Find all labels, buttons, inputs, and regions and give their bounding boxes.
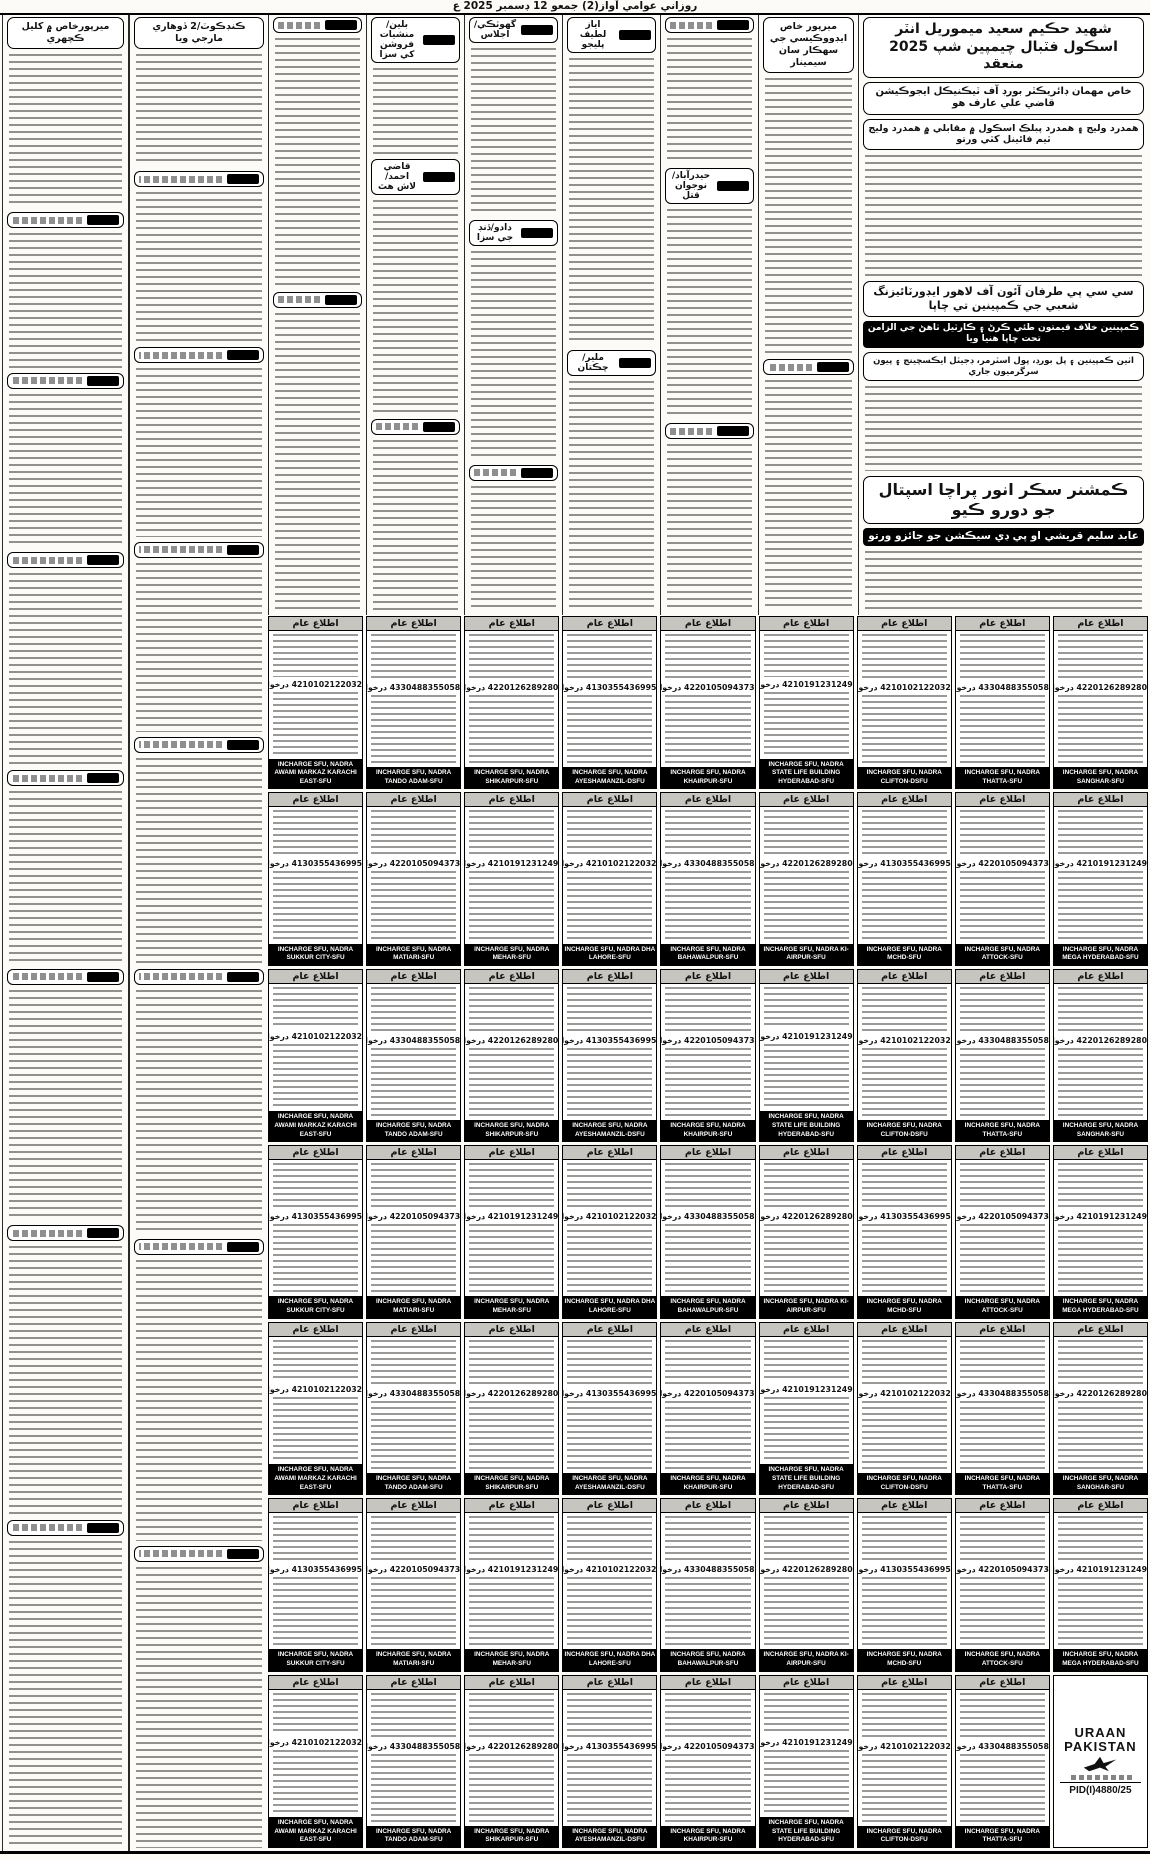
cnic-number: 4220105094373 درخواست وصول [956, 1212, 1049, 1221]
notice-title: اطلاع عام [563, 1676, 656, 1690]
notice-title: اطلاع عام [563, 1323, 656, 1337]
notice-cell: اطلاع عام4220126289280 درخواست وصولINCHA… [759, 1498, 854, 1671]
notice-cell: اطلاع عام4220105094373 درخواست وصولINCHA… [660, 616, 755, 789]
notice-cell: اطلاع عام4210191231249 درخواست وصولINCHA… [464, 792, 559, 965]
body-text-block [373, 200, 458, 414]
incharge-footer: INCHARGE SFU, NADRA CLIFTON-DSFU [858, 1473, 951, 1494]
notice-body-text [862, 871, 947, 940]
notice-cell: اطلاع عام4220105094373 درخواست وصولINCHA… [660, 1322, 755, 1495]
incharge-footer: INCHARGE SFU, NADRA SHIKARPUR-SFU [465, 1826, 558, 1847]
body-text-block [136, 54, 262, 166]
cnic-number: 4220126289280 درخواست وصول [760, 1212, 853, 1221]
notice-body-text [665, 1754, 750, 1823]
subhead-box [763, 359, 854, 375]
notice-cell: اطلاع عام4210191231249 درخواست وصولINCHA… [1053, 1498, 1148, 1671]
notice-body-text [862, 1577, 947, 1646]
notice-cell: اطلاع عام4210191231249 درخواست وصولINCHA… [464, 1498, 559, 1671]
body-text-block [865, 386, 1142, 471]
notice-body-text [665, 1577, 750, 1646]
notice-title: اطلاع عام [858, 970, 951, 984]
notice-body-text [371, 987, 456, 1033]
incharge-footer: INCHARGE SFU, NADRA KHAIRPUR-SFU [661, 1826, 754, 1847]
unreadable-subhead-text [139, 1550, 222, 1557]
notice-body-text [371, 1693, 456, 1739]
cnic-number: 4210191231249 درخواست وصول [465, 859, 558, 868]
subhead-box: ملير/چڪتان [567, 350, 656, 376]
notice-body-text [665, 1340, 750, 1386]
cnic-number: 4210102122032 درخواست وصول [563, 1212, 656, 1221]
subhead-box [7, 373, 124, 389]
notice-body-text [862, 1163, 947, 1209]
notice-body-text [567, 1224, 652, 1293]
notice-body-text [273, 1516, 358, 1562]
notice-body-text [1058, 987, 1143, 1033]
subhead-box [134, 1546, 264, 1562]
body-text-block [9, 54, 122, 208]
notice-title: اطلاع عام [956, 1499, 1049, 1513]
cnic-number: 4130355436995 درخواست وصول [858, 1212, 951, 1221]
notice-title: اطلاع عام [760, 793, 853, 807]
notice-title: اطلاع عام [1054, 617, 1147, 631]
headline-box: ميرپور خاص ايڊووڪيسي جي سهڪار سان سيمينا… [763, 17, 854, 73]
headline-box: ڪمشنر سڪر انور پراچا اسپتال جو دورو ڪيو [863, 476, 1144, 524]
cnic-number: 4330488355058 درخواست وصول [661, 1565, 754, 1574]
notice-cell: اطلاع عام4220126289280 درخواست وصولINCHA… [464, 1675, 559, 1848]
category-tag [325, 20, 357, 30]
cnic-number: 4220126289280 درخواست وصول [465, 683, 558, 692]
notice-body-text [764, 1750, 849, 1814]
incharge-footer: INCHARGE SFU, NADRA DHA LAHORE-SFU [563, 944, 656, 965]
notice-cell: اطلاع عام4220105094373 درخواست وصولINCHA… [955, 792, 1050, 965]
notice-title: اطلاع عام [269, 1676, 362, 1690]
body-text-block [136, 368, 262, 537]
notice-body-text [764, 634, 849, 677]
notice-cell: اطلاع عام4210102122032 درخواست وصولINCHA… [562, 1145, 657, 1318]
notice-body-text [469, 1516, 554, 1562]
article-column-1: ڪنڊڪوٽ/2 ڏوهاري مارجي ويا [129, 14, 268, 1852]
notice-body-text [469, 695, 554, 764]
body-text-block [136, 1260, 262, 1541]
cnic-number: 4220105094373 درخواست وصول [661, 1389, 754, 1398]
subhead-box [7, 770, 124, 786]
cnic-number: 4330488355058 درخواست وصول [956, 683, 1049, 692]
cnic-number: 4210191231249 درخواست وصول [760, 1032, 853, 1041]
notice-cell: اطلاع عام4130355436995 درخواست وصولINCHA… [562, 616, 657, 789]
article-column-2 [268, 14, 366, 615]
notice-title: اطلاع عام [956, 970, 1049, 984]
notice-title: اطلاع عام [367, 793, 460, 807]
notice-title: اطلاع عام [858, 1676, 951, 1690]
article-column-6: حيدرآباد/نوجوان قتل [660, 14, 758, 615]
unreadable-subhead-text [12, 557, 82, 564]
notice-cell: اطلاع عام4210102122032 درخواست وصولINCHA… [268, 969, 363, 1142]
cnic-number: 4220105094373 درخواست وصول [956, 859, 1049, 868]
unreadable-subhead-text [12, 217, 82, 224]
notice-body-text [1058, 1516, 1143, 1562]
cnic-number: 4220126289280 درخواست وصول [465, 1389, 558, 1398]
cnic-number: 4130355436995 درخواست وصول [563, 1036, 656, 1045]
unreadable-subhead-text [139, 176, 222, 183]
notice-body-text [567, 695, 652, 764]
notice-title: اطلاع عام [367, 970, 460, 984]
headline-box: اٺين ڪمپينين ۽ پل بورڊ، پول اسٽرمر، ڊجيٽ… [863, 352, 1144, 381]
incharge-footer: INCHARGE SFU, NADRA SUKKUR CITY-SFU [269, 1649, 362, 1670]
notice-title: اطلاع عام [367, 1323, 460, 1337]
cnic-number: 4210102122032 درخواست وصول [858, 1389, 951, 1398]
notice-body-text [862, 1516, 947, 1562]
article-column-0: ميرپورخاص ۾ کليل ڪچهري [2, 14, 129, 1852]
category-tag [227, 740, 259, 750]
cnic-number: 4330488355058 درخواست وصول [956, 1742, 1049, 1751]
notice-title: اطلاع عام [661, 617, 754, 631]
unreadable-subhead-text [12, 377, 82, 384]
category-tag [619, 358, 651, 368]
incharge-footer: INCHARGE SFU, NADRA AYESHAMANZIL-DSFU [563, 767, 656, 788]
notice-cell: اطلاع عام4330488355058 درخواست وصولINCHA… [366, 1675, 461, 1848]
notice-body-text [665, 634, 750, 680]
cnic-number: 4210191231249 درخواست وصول [760, 1385, 853, 1394]
body-text-block [865, 551, 1142, 611]
notice-body-text [1058, 634, 1143, 680]
notice-body-text [1058, 695, 1143, 764]
cnic-number: 4210191231249 درخواست وصول [1054, 859, 1147, 868]
cnic-number: 4330488355058 درخواست وصول [367, 1389, 460, 1398]
unreadable-subhead-text [139, 1243, 222, 1250]
incharge-footer: INCHARGE SFU, NADRA AWAMI MARKAZ KARACHI… [269, 1817, 362, 1847]
cnic-number: 4130355436995 درخواست وصول [858, 859, 951, 868]
notice-body-text [371, 1401, 456, 1470]
notice-title: اطلاع عام [858, 793, 951, 807]
notice-cell: اطلاع عام4220126289280 درخواست وصولINCHA… [464, 969, 559, 1142]
category-tag [227, 972, 259, 982]
notice-title: اطلاع عام [367, 617, 460, 631]
notice-body-text [1058, 1340, 1143, 1386]
notice-cell: اطلاع عام4330488355058 درخواست وصولINCHA… [366, 616, 461, 789]
notice-body-text [862, 1401, 947, 1470]
notice-title: اطلاع عام [367, 1499, 460, 1513]
notice-cell: اطلاع عام4210191231249 درخواست وصولINCHA… [759, 616, 854, 789]
subhead-box [665, 423, 754, 439]
unreadable-subhead-text [376, 423, 418, 430]
cnic-number: 4220126289280 درخواست وصول [760, 859, 853, 868]
category-tag [87, 215, 119, 225]
unreadable-subhead-text [670, 428, 712, 435]
body-text-block [471, 48, 556, 215]
cnic-number: 4130355436995 درخواست وصول [563, 1389, 656, 1398]
notice-title: اطلاع عام [858, 617, 951, 631]
category-tag [521, 468, 553, 478]
cnic-number: 4130355436995 درخواست وصول [269, 859, 362, 868]
incharge-footer: INCHARGE SFU, NADRA THATTA-SFU [956, 1826, 1049, 1847]
incharge-footer: INCHARGE SFU, NADRA THATTA-SFU [956, 1120, 1049, 1141]
cnic-number: 4130355436995 درخواست وصول [563, 1742, 656, 1751]
incharge-footer: INCHARGE SFU, NADRA STATE LIFE BUILDING … [760, 1464, 853, 1494]
notice-body-text [1058, 1224, 1143, 1293]
notice-cell: اطلاع عام4210191231249 درخواست وصولINCHA… [759, 1322, 854, 1495]
cnic-number: 4330488355058 درخواست وصول [956, 1389, 1049, 1398]
notice-title: اطلاع عام [367, 1146, 460, 1160]
headline-box: خاص مهمان ڊائريڪٽر بورڊ آف ٽيڪنيڪل ايجوڪ… [863, 82, 1144, 115]
notice-body-text [273, 1693, 358, 1736]
notice-title: اطلاع عام [956, 617, 1049, 631]
notice-cell: اطلاع عام4220126289280 درخواست وصولINCHA… [1053, 616, 1148, 789]
notice-body-text [862, 1048, 947, 1117]
cnic-number: 4330488355058 درخواست وصول [367, 683, 460, 692]
subhead-label: قاضي احمد/لاش هٿ [376, 162, 418, 192]
notice-cell: اطلاع عام4210102122032 درخواست وصولINCHA… [857, 969, 952, 1142]
headline-box: ميرپورخاص ۾ کليل ڪچهري [7, 17, 124, 49]
notice-body-text [469, 1401, 554, 1470]
body-text-block [471, 486, 556, 611]
category-tag [717, 426, 749, 436]
body-text-block [9, 394, 122, 548]
notice-body-text [469, 1754, 554, 1823]
notice-title: اطلاع عام [858, 1499, 951, 1513]
incharge-footer: INCHARGE SFU, NADRA SHIKARPUR-SFU [465, 1473, 558, 1494]
notice-cell: اطلاع عام4130355436995 درخواست وصولINCHA… [857, 1145, 952, 1318]
notice-title: اطلاع عام [661, 793, 754, 807]
category-tag [717, 20, 749, 30]
cnic-number: 4210102122032 درخواست وصول [269, 1385, 362, 1394]
category-tag [227, 1242, 259, 1252]
notice-cell: اطلاع عام4210191231249 درخواست وصولINCHA… [1053, 1145, 1148, 1318]
notice-body-text [764, 987, 849, 1030]
notice-title: اطلاع عام [269, 970, 362, 984]
incharge-footer: INCHARGE SFU, NADRA SUKKUR CITY-SFU [269, 1296, 362, 1317]
notice-body-text [273, 810, 358, 856]
category-tag [87, 773, 119, 783]
notice-body-text [567, 1340, 652, 1386]
incharge-footer: INCHARGE SFU, NADRA MEGA HYDERABAD-SFU [1054, 944, 1147, 965]
notice-title: اطلاع عام [956, 1676, 1049, 1690]
unreadable-subhead-text [139, 741, 222, 748]
notice-cell: اطلاع عام4210102122032 درخواست وصولINCHA… [562, 1498, 657, 1671]
notice-body-text [665, 1048, 750, 1117]
incharge-footer: INCHARGE SFU, NADRA STATE LIFE BUILDING … [760, 1111, 853, 1141]
notice-body-text [273, 1044, 358, 1108]
incharge-footer: INCHARGE SFU, NADRA BAHAWALPUR-SFU [661, 1649, 754, 1670]
notice-title: اطلاع عام [760, 970, 853, 984]
incharge-footer: INCHARGE SFU, NADRA KI-AIRPUR-SFU [760, 944, 853, 965]
notice-title: اطلاع عام [956, 1323, 1049, 1337]
notice-body-text [273, 1397, 358, 1461]
notice-title: اطلاع عام [661, 1499, 754, 1513]
cnic-number: 4220126289280 درخواست وصول [1054, 683, 1147, 692]
notice-cell: اطلاع عام4220126289280 درخواست وصولINCHA… [759, 1145, 854, 1318]
category-tag [227, 545, 259, 555]
unreadable-subhead-text [139, 352, 222, 359]
body-text-block [471, 251, 556, 460]
notice-title: اطلاع عام [563, 793, 656, 807]
notice-body-text [273, 1750, 358, 1814]
cnic-number: 4210102122032 درخواست وصول [269, 1738, 362, 1747]
notice-title: اطلاع عام [956, 1146, 1049, 1160]
cnic-number: 4210191231249 درخواست وصول [1054, 1212, 1147, 1221]
incharge-footer: INCHARGE SFU, NADRA BAHAWALPUR-SFU [661, 944, 754, 965]
notice-body-text [469, 1163, 554, 1209]
body-text-block [765, 78, 852, 355]
subhead-box [7, 969, 124, 985]
incharge-footer: INCHARGE SFU, NADRA CLIFTON-DSFU [858, 767, 951, 788]
incharge-footer: INCHARGE SFU, NADRA MATIARI-SFU [367, 1649, 460, 1670]
category-tag [227, 174, 259, 184]
notice-body-text [567, 1754, 652, 1823]
notice-title: اطلاع عام [661, 1146, 754, 1160]
notice-body-text [960, 1048, 1045, 1117]
subhead-box [7, 212, 124, 228]
cnic-number: 4210191231249 درخواست وصول [1054, 1565, 1147, 1574]
subhead-box: دادو/ڏنڊ جي سزا [469, 220, 558, 246]
category-tag [521, 25, 553, 35]
notice-title: اطلاع عام [269, 1499, 362, 1513]
incharge-footer: INCHARGE SFU, NADRA SHIKARPUR-SFU [465, 767, 558, 788]
body-text-block [136, 990, 262, 1234]
notice-title: اطلاع عام [1054, 1146, 1147, 1160]
unreadable-subhead-text [12, 775, 82, 782]
notice-body-text [960, 1163, 1045, 1209]
notice-body-text [764, 1163, 849, 1209]
cnic-number: 4330488355058 درخواست وصول [661, 859, 754, 868]
unreadable-subhead-text [278, 22, 320, 29]
notice-title: اطلاع عام [269, 1323, 362, 1337]
category-tag [423, 422, 455, 432]
cnic-number: 4330488355058 درخواست وصول [367, 1036, 460, 1045]
notice-title: اطلاع عام [661, 970, 754, 984]
notice-cell: اطلاع عام4330488355058 درخواست وصولINCHA… [955, 969, 1050, 1142]
body-text-block [667, 444, 752, 611]
notice-body-text [960, 1577, 1045, 1646]
notice-body-text [567, 810, 652, 856]
category-tag [817, 362, 849, 372]
category-tag [87, 376, 119, 386]
notice-cell: اطلاع عام4210102122032 درخواست وصولINCHA… [268, 1322, 363, 1495]
notice-body-text [764, 1693, 849, 1736]
notice-cell: اطلاع عام4210191231249 درخواست وصولINCHA… [759, 969, 854, 1142]
incharge-footer: INCHARGE SFU, NADRA THATTA-SFU [956, 767, 1049, 788]
cnic-number: 4330488355058 درخواست وصول [367, 1742, 460, 1751]
subhead-box [134, 171, 264, 187]
cnic-number: 4220105094373 درخواست وصول [956, 1565, 1049, 1574]
notice-cell: اطلاع عام4330488355058 درخواست وصولINCHA… [955, 616, 1050, 789]
incharge-footer: INCHARGE SFU, NADRA KHAIRPUR-SFU [661, 1120, 754, 1141]
incharge-footer: INCHARGE SFU, NADRA MEGA HYDERABAD-SFU [1054, 1296, 1147, 1317]
incharge-footer: INCHARGE SFU, NADRA TANDO ADAM-SFU [367, 1826, 460, 1847]
notice-cell: اطلاع عام4220105094373 درخواست وصولINCHA… [660, 969, 755, 1142]
cnic-number: 4210191231249 درخواست وصول [465, 1565, 558, 1574]
logo-tagline [1069, 1775, 1131, 1780]
notice-body-text [862, 695, 947, 764]
uraan-pakistan-logo-cell: URAAN PAKISTANPID(I)4880/25 [1053, 1675, 1148, 1848]
notice-body-text [862, 1693, 947, 1739]
notice-body-text [371, 1163, 456, 1209]
body-text-block [9, 233, 122, 367]
subhead-box [7, 1225, 124, 1241]
incharge-footer: INCHARGE SFU, NADRA TANDO ADAM-SFU [367, 1473, 460, 1494]
notice-body-text [1058, 1163, 1143, 1209]
incharge-footer: INCHARGE SFU, NADRA DHA LAHORE-SFU [563, 1296, 656, 1317]
incharge-footer: INCHARGE SFU, NADRA MATIARI-SFU [367, 1296, 460, 1317]
body-text-block [9, 1246, 122, 1515]
incharge-footer: INCHARGE SFU, NADRA DHA LAHORE-SFU [563, 1649, 656, 1670]
body-text-block [136, 563, 262, 732]
notice-title: اطلاع عام [858, 1146, 951, 1160]
category-tag [423, 35, 455, 45]
notice-title: اطلاع عام [1054, 1323, 1147, 1337]
notice-cell: اطلاع عام4220126289280 درخواست وصولINCHA… [464, 1322, 559, 1495]
notice-body-text [371, 1754, 456, 1823]
pid-number: PID(I)4880/25 [1060, 1782, 1140, 1796]
notice-cell: اطلاع عام4220105094373 درخواست وصولINCHA… [955, 1145, 1050, 1318]
notice-body-text [862, 987, 947, 1033]
body-text-block [865, 155, 1142, 276]
notice-cell: اطلاع عام4130355436995 درخواست وصولINCHA… [857, 1498, 952, 1671]
notice-body-text [862, 1340, 947, 1386]
notice-cell: اطلاع عام4210102122032 درخواست وصولINCHA… [268, 1675, 363, 1848]
notice-title: اطلاع عام [661, 1676, 754, 1690]
article-column-8: شهيد حڪيم سعيد ميموريل انٽر اسڪول فٽبال … [858, 14, 1148, 615]
incharge-footer: INCHARGE SFU, NADRA ATTOCK-SFU [956, 1649, 1049, 1670]
notice-cell: اطلاع عام4330488355058 درخواست وصولINCHA… [955, 1675, 1050, 1848]
notice-body-text [469, 634, 554, 680]
notice-body-text [273, 1163, 358, 1209]
notice-cell: اطلاع عام4220126289280 درخواست وصولINCHA… [464, 616, 559, 789]
cnic-number: 4220105094373 درخواست وصول [367, 1565, 460, 1574]
headline-box: ڪنڊڪوٽ/2 ڏوهاري مارجي ويا [134, 17, 264, 49]
cnic-number: 4220105094373 درخواست وصول [367, 859, 460, 868]
unreadable-subhead-text [12, 973, 82, 980]
notice-cell: اطلاع عام4220105094373 درخواست وصولINCHA… [366, 1498, 461, 1671]
notice-body-text [764, 1044, 849, 1108]
subhead-label: بلين/منشيات فروشن کي سزا [376, 20, 418, 60]
notice-body-text [273, 1224, 358, 1293]
notice-title: اطلاع عام [465, 1676, 558, 1690]
notice-title: اطلاع عام [858, 1323, 951, 1337]
notice-cell: اطلاع عام4220105094373 درخواست وصولINCHA… [955, 1498, 1050, 1671]
notice-title: اطلاع عام [563, 1146, 656, 1160]
category-tag [87, 555, 119, 565]
notice-body-text [960, 1754, 1045, 1823]
headline-box: سي سي پي طرفان آئون آف لاهور ايڊورٽائيزن… [863, 281, 1144, 317]
notice-body-text [371, 695, 456, 764]
incharge-footer: INCHARGE SFU, NADRA SHIKARPUR-SFU [465, 1120, 558, 1141]
notice-body-text [960, 1340, 1045, 1386]
notice-cell: اطلاع عام4220105094373 درخواست وصولINCHA… [660, 1675, 755, 1848]
notice-cell: اطلاع عام4330488355058 درخواست وصولINCHA… [660, 792, 755, 965]
notice-body-text [665, 810, 750, 856]
notice-body-text [469, 1577, 554, 1646]
cnic-number: 4130355436995 درخواست وصول [858, 1565, 951, 1574]
category-tag [227, 1549, 259, 1559]
notice-cell: اطلاع عام4130355436995 درخواست وصولINCHA… [562, 969, 657, 1142]
subhead-box: قاضي احمد/لاش هٿ [371, 159, 460, 195]
unreadable-subhead-text [670, 22, 712, 29]
subhead-box [134, 969, 264, 985]
notice-title: اطلاع عام [269, 617, 362, 631]
incharge-footer: INCHARGE SFU, NADRA SANGHAR-SFU [1054, 1120, 1147, 1141]
subhead-label: حيدرآباد/نوجوان قتل [670, 171, 712, 201]
reversed-subhead-bar: عابد سليم قريشي او پي ڊي سيڪشن جو جائزو … [863, 528, 1144, 546]
incharge-footer: INCHARGE SFU, NADRA KHAIRPUR-SFU [661, 1473, 754, 1494]
cnic-number: 4130355436995 درخواست وصول [269, 1212, 362, 1221]
incharge-footer: INCHARGE SFU, NADRA AWAMI MARKAZ KARACHI… [269, 1111, 362, 1141]
notice-body-text [862, 1754, 947, 1823]
notice-body-text [665, 987, 750, 1033]
notice-cell: اطلاع عام4330488355058 درخواست وصولINCHA… [955, 1322, 1050, 1495]
notice-title: اطلاع عام [465, 1323, 558, 1337]
cnic-number: 4210191231249 درخواست وصول [465, 1212, 558, 1221]
incharge-footer: INCHARGE SFU, NADRA CLIFTON-DSFU [858, 1120, 951, 1141]
incharge-footer: INCHARGE SFU, NADRA TANDO ADAM-SFU [367, 1120, 460, 1141]
